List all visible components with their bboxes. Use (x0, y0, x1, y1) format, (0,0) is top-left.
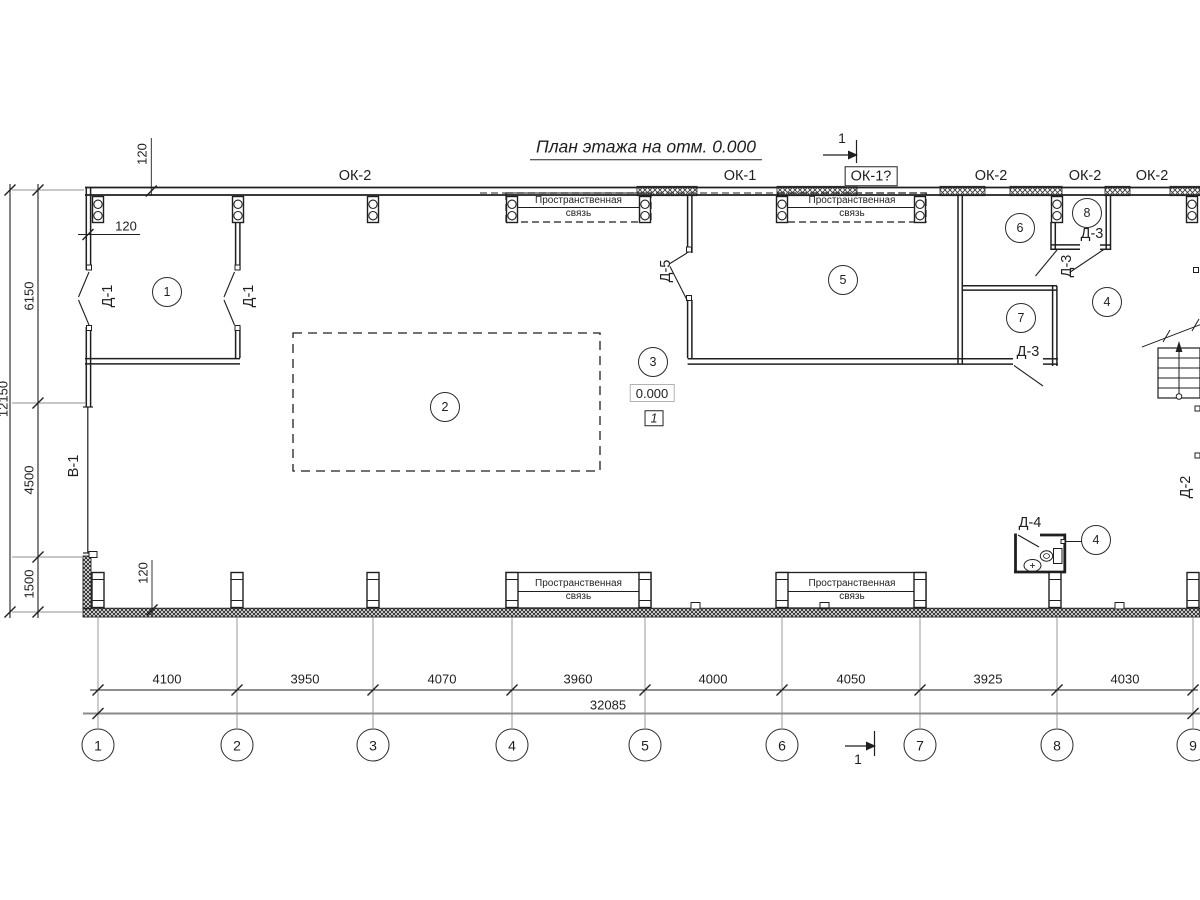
dim-bottom-8: 4030 (1111, 673, 1140, 686)
spatial-tie-boxes (480, 193, 930, 608)
drawing-title: План этажа на отм. 0.000 (530, 138, 762, 160)
door-label-d1-2: Д-1 (242, 285, 257, 308)
grid-bubble-8: 8 (1041, 729, 1074, 762)
door-label-d2: Д-2 (1179, 476, 1194, 499)
grid-bubble-6: 6 (766, 729, 799, 762)
dim-bottom-5: 4000 (699, 673, 728, 686)
dim-bottom-1: 4100 (153, 673, 182, 686)
dim-bottom-7: 3925 (974, 673, 1003, 686)
stairs (1142, 319, 1200, 399)
dim-bottom-6: 4050 (837, 673, 866, 686)
window-label-ok2-1: ОК-2 (339, 169, 372, 184)
wc-tank (1054, 549, 1063, 564)
dim-bottom-3: 4070 (428, 673, 457, 686)
elevation-value: 0.000 (630, 384, 675, 402)
elevation-flag: 1 (645, 410, 664, 426)
room-circle-4: 4 (1092, 287, 1122, 317)
section-mark-bottom-label: 1 (854, 752, 862, 766)
room-circle-5: 5 (828, 265, 858, 295)
floor-plan-canvas: План этажа на отм. 0.000 1 1 ОК-2 ОК-1 О… (0, 0, 1200, 900)
grid-bubble-5: 5 (629, 729, 662, 762)
dim-left-1: 6150 (23, 282, 36, 311)
dim-left-3: 1500 (23, 570, 36, 599)
room-circle-8: 8 (1072, 198, 1102, 228)
spatial-tie-bottom-1: Пространственнаясвязь (506, 577, 651, 603)
section-mark-top-label: 1 (838, 131, 846, 145)
room5-walls (687, 196, 1059, 364)
room-circle-6: 6 (1005, 213, 1035, 243)
bottom-dim-lines (83, 685, 1200, 720)
door-label-d3-rot: Д-3 (1060, 255, 1075, 278)
door-swings (79, 249, 1105, 386)
wc-bowl (1040, 551, 1052, 561)
window-label-ok2-3: ОК-2 (1069, 169, 1102, 184)
door-label-d4: Д-4 (1019, 516, 1042, 531)
grid-lines (12, 190, 1193, 728)
left-wall (83, 187, 97, 609)
spatial-tie-bottom-2: Пространственнаясвязь (778, 577, 926, 603)
window-label-ok1-query: ОК-1? (845, 166, 898, 186)
window-label-ok1: ОК-1 (724, 169, 757, 184)
v1-opening (83, 407, 93, 553)
room-circle-2: 2 (430, 392, 460, 422)
dim-left-2: 4500 (23, 466, 36, 495)
window-label-ok2-2: ОК-2 (975, 169, 1008, 184)
grid-bubble-2: 2 (221, 729, 254, 762)
window-label-ok2-4: ОК-2 (1136, 169, 1169, 184)
toilet-room (1014, 534, 1083, 574)
door-label-d3-room7: Д-3 (1017, 345, 1040, 360)
door-label-d3-room8: Д-3 (1081, 227, 1104, 242)
dim-bottom-2: 3950 (291, 673, 320, 686)
spatial-tie-top-2: Пространственнаясвязь (778, 195, 926, 220)
room-circle-3: 3 (638, 347, 668, 377)
dim-wall-120-left: 120 (115, 220, 137, 233)
dim-total: 32085 (590, 699, 626, 712)
door-label-d5: Д-5 (659, 260, 674, 283)
grid-bubble-3: 3 (357, 729, 390, 762)
grid-bubble-1: 1 (82, 729, 115, 762)
dim-bottom-4: 3960 (564, 673, 593, 686)
dim-wall-120-bottom: 120 (137, 562, 150, 584)
spatial-tie-top-1: Пространственнаясвязь (506, 195, 651, 220)
door-label-d1-1: Д-1 (101, 285, 116, 308)
room-circle-4b: 4 (1081, 525, 1111, 555)
gate-label-v1: В-1 (67, 455, 82, 478)
room-circle-1: 1 (152, 277, 182, 307)
dim-left-total: 12150 (0, 381, 10, 417)
section-marks (823, 140, 876, 756)
right-edge-wall (1194, 268, 1200, 459)
dim-wall-120-top: 120 (136, 143, 149, 165)
plan-linework (0, 0, 1200, 900)
grid-bubble-4: 4 (496, 729, 529, 762)
toilet-door-swing (1018, 535, 1039, 547)
hatched-corner-wall (83, 556, 91, 609)
grid-bubble-7: 7 (904, 729, 937, 762)
room-circle-7: 7 (1006, 303, 1036, 333)
